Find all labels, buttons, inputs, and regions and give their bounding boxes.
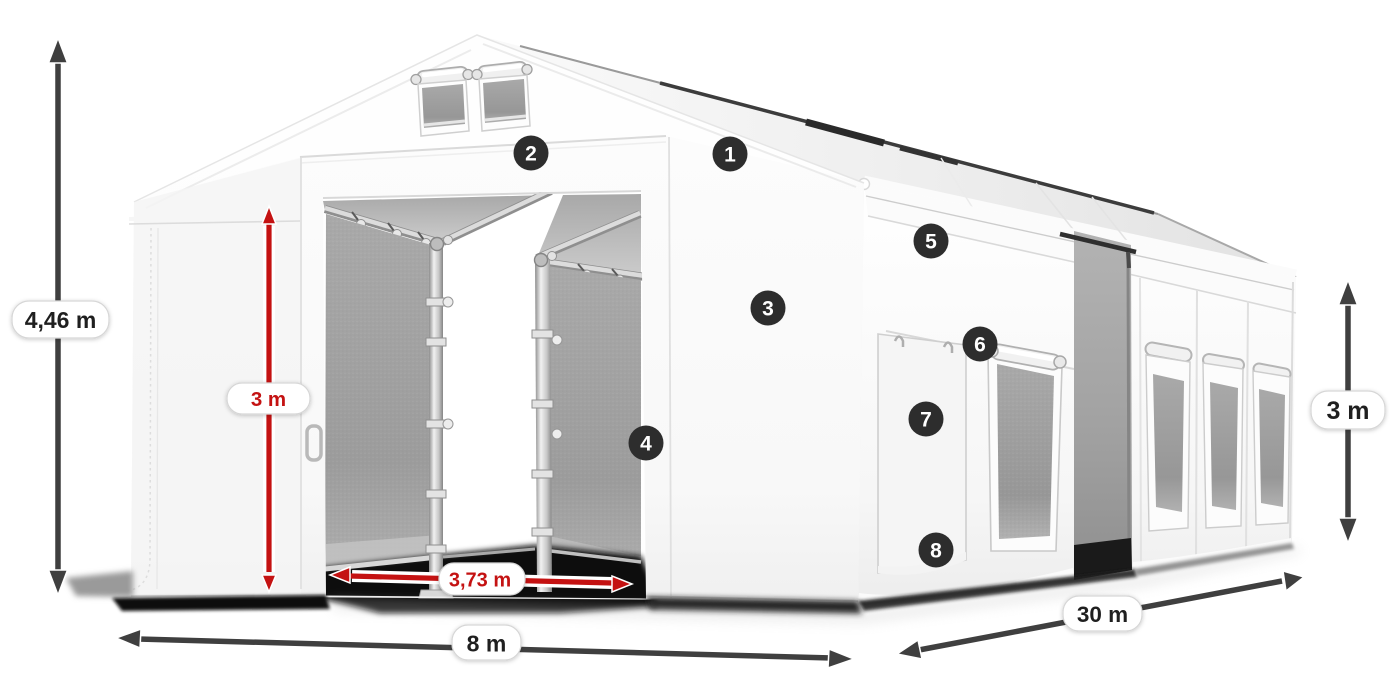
svg-text:3 m: 3 m	[1326, 397, 1369, 425]
svg-text:3: 3	[762, 298, 774, 321]
svg-text:1: 1	[724, 144, 736, 167]
svg-text:30 m: 30 m	[1077, 602, 1128, 627]
svg-text:4,46 m: 4,46 m	[25, 307, 97, 333]
svg-text:8 m: 8 m	[467, 631, 507, 657]
svg-text:3 m: 3 m	[251, 388, 286, 411]
svg-text:3,73 m: 3,73 m	[449, 570, 511, 592]
svg-text:8: 8	[930, 540, 942, 563]
svg-text:7: 7	[920, 409, 932, 432]
svg-text:2: 2	[525, 143, 537, 166]
svg-text:6: 6	[974, 334, 986, 357]
svg-text:4: 4	[640, 433, 652, 456]
svg-text:5: 5	[925, 231, 937, 254]
